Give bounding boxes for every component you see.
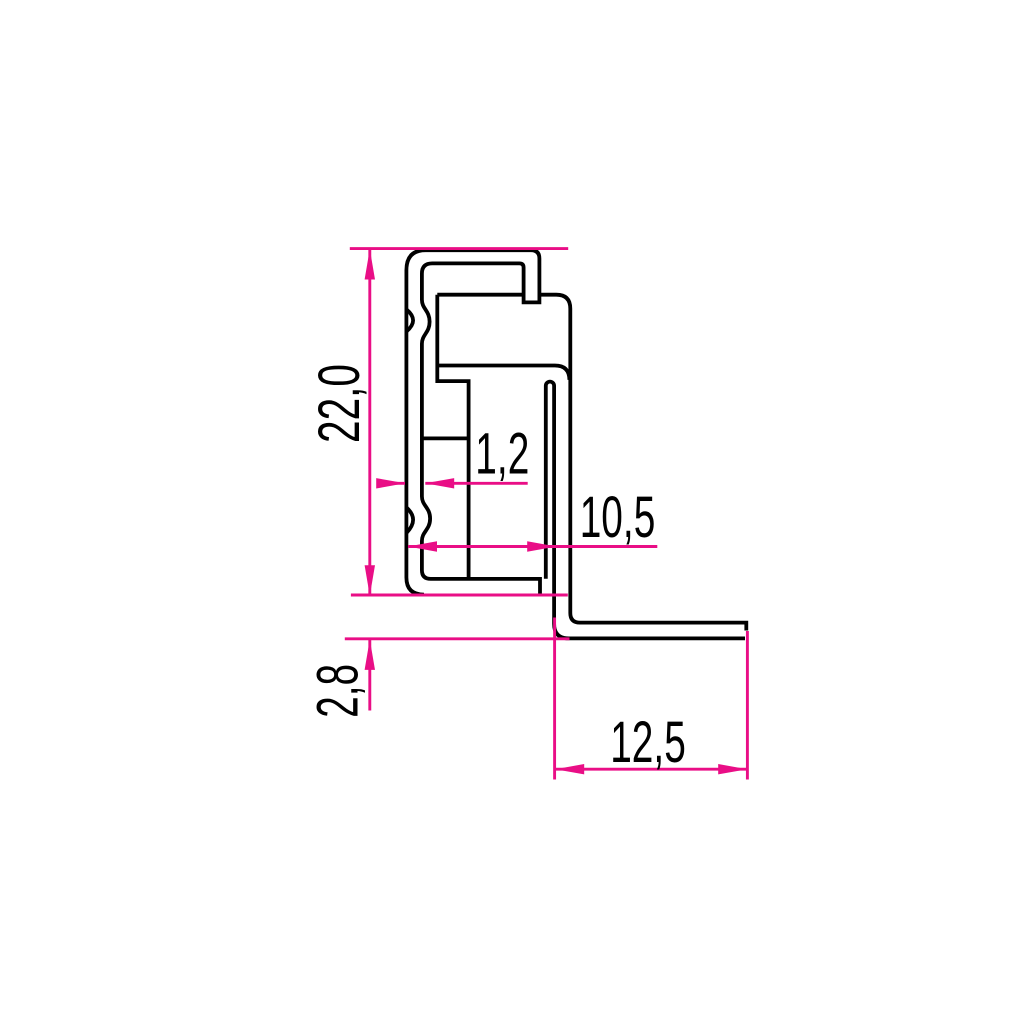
svg-text:12,5: 12,5 [610, 710, 686, 775]
svg-text:2,8: 2,8 [306, 664, 371, 718]
svg-text:10,5: 10,5 [580, 485, 656, 550]
svg-text:1,2: 1,2 [475, 422, 529, 487]
svg-text:22,0: 22,0 [307, 364, 372, 443]
